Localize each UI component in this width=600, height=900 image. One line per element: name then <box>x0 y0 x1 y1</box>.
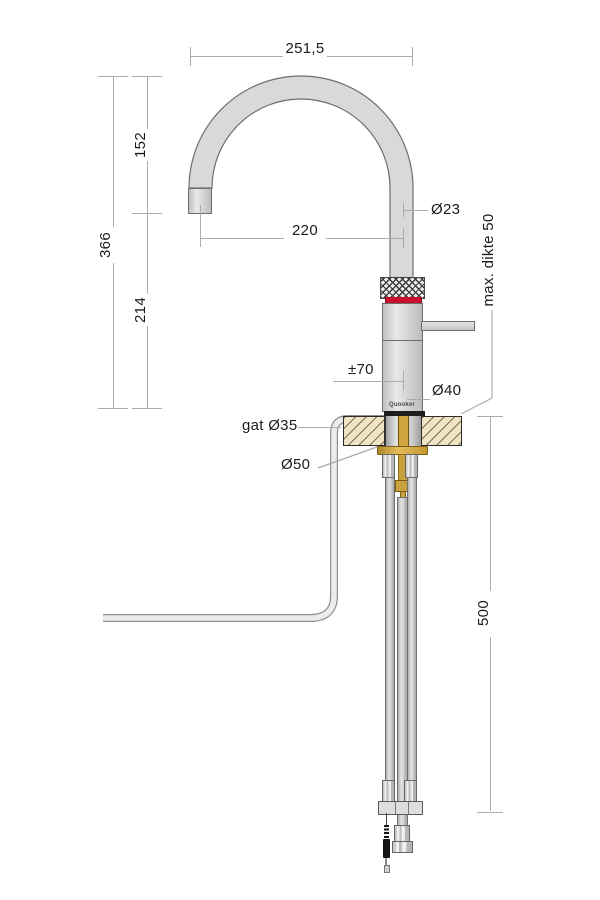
dim-max-thickness-value: max. dikte 50 <box>481 213 497 306</box>
sensor-cable-wire <box>386 813 387 825</box>
countertop-left-section <box>343 416 385 446</box>
technical-drawing-canvas: Quooker 251,5 366 <box>0 0 600 900</box>
dim-upper-height-line-top <box>147 76 148 129</box>
faucet-body-upper <box>382 303 423 341</box>
handle-lever <box>421 321 475 332</box>
dim-top-width-tick-right <box>412 47 413 66</box>
dim-depth-value: 500 <box>476 600 492 626</box>
clamp-plate <box>378 801 424 815</box>
dim-flange-dia-value: Ø50 <box>281 457 310 473</box>
hose-fitting-right <box>405 454 419 478</box>
supply-tube-right <box>407 477 417 782</box>
dim-upper-height-value: 152 <box>133 132 149 158</box>
dim-hole-dia-value: gat Ø35 <box>242 418 297 434</box>
connector-nut-left <box>382 780 395 803</box>
dim-depth-line-lower <box>490 637 491 811</box>
dim-reach-value: 220 <box>292 223 318 239</box>
connector-nut-right <box>404 780 417 803</box>
dim-top-width-value: 251,5 <box>285 41 324 57</box>
clamp-plate-slot-left <box>395 802 396 814</box>
jack-plug <box>383 839 390 858</box>
flexible-hose-outline <box>103 419 384 618</box>
dim-lower-height-value: 214 <box>133 297 149 323</box>
dim-depth-line-upper <box>490 416 491 591</box>
dim-lower-height-line-bottom <box>147 326 148 408</box>
dim-top-width-line-right <box>327 56 412 57</box>
dim-top-width-line-left <box>190 56 283 57</box>
hex-end-cap <box>392 841 413 853</box>
jack-plug-tip-cap <box>384 865 390 873</box>
dim-spout-dia-value: Ø23 <box>431 202 460 218</box>
dim-upper-height-line-bottom <box>147 161 148 213</box>
dim-reach-line-right <box>326 238 403 239</box>
dim-hole-dia-leader <box>298 427 341 428</box>
dim-body-dia-value: Ø40 <box>432 383 461 399</box>
spout-arc-and-riser <box>189 76 413 278</box>
dim-reach-ext-line <box>200 205 201 247</box>
dim-total-height-tick-bottom <box>98 408 128 409</box>
dim-handle-clearance-tick <box>403 371 404 391</box>
sensor-cable-coil <box>384 825 389 839</box>
dim-handle-clearance-line <box>333 381 403 382</box>
dim-lower-height-line-top <box>147 213 148 294</box>
supply-tube-left <box>385 477 395 782</box>
dim-lower-height-tick-bottom <box>132 408 162 409</box>
drawing-curves-layer <box>0 0 600 900</box>
clamp-plate-slot-right <box>408 802 409 814</box>
dim-reach-tick-right <box>403 228 404 248</box>
dim-total-height-line-lower <box>113 263 114 408</box>
dim-total-height-value: 366 <box>98 232 114 258</box>
dim-upper-height-tick-top <box>132 76 162 77</box>
brand-logo: Quooker <box>383 402 422 409</box>
countertop-right-section <box>421 416 462 446</box>
hose-fitting-left <box>382 454 396 478</box>
flange-diameter-leader-line <box>318 447 377 468</box>
dim-total-height-tick-top <box>98 76 128 77</box>
knurled-ring <box>380 277 425 299</box>
dim-reach-line-left <box>200 238 284 239</box>
dim-depth-tick-bottom <box>477 812 503 813</box>
dim-spout-dia-leader <box>403 210 428 211</box>
shank-brass-core <box>398 416 410 446</box>
flexible-hose-body <box>103 419 384 618</box>
dim-body-dia-leader <box>407 399 430 400</box>
dim-total-height-line-upper <box>113 76 114 227</box>
dim-handle-clearance-value: ±70 <box>348 362 374 378</box>
dim-top-width-tick-left <box>190 47 191 66</box>
lower-connector <box>394 825 410 842</box>
